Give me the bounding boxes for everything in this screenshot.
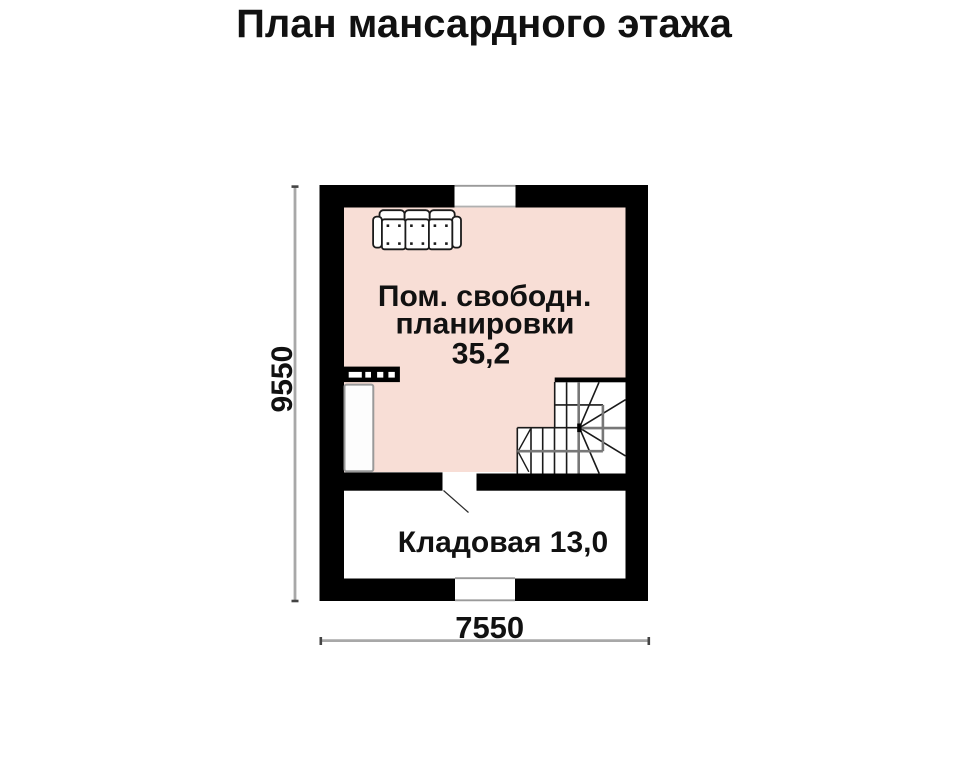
svg-text:планировки: планировки (396, 307, 575, 340)
svg-text:Кладовая 13,0: Кладовая 13,0 (398, 526, 608, 559)
svg-text:План мансардного этажа: План мансардного этажа (236, 2, 732, 46)
svg-text:35,2: 35,2 (452, 338, 510, 371)
svg-text:9550: 9550 (266, 346, 299, 413)
svg-text:7550: 7550 (455, 610, 524, 645)
